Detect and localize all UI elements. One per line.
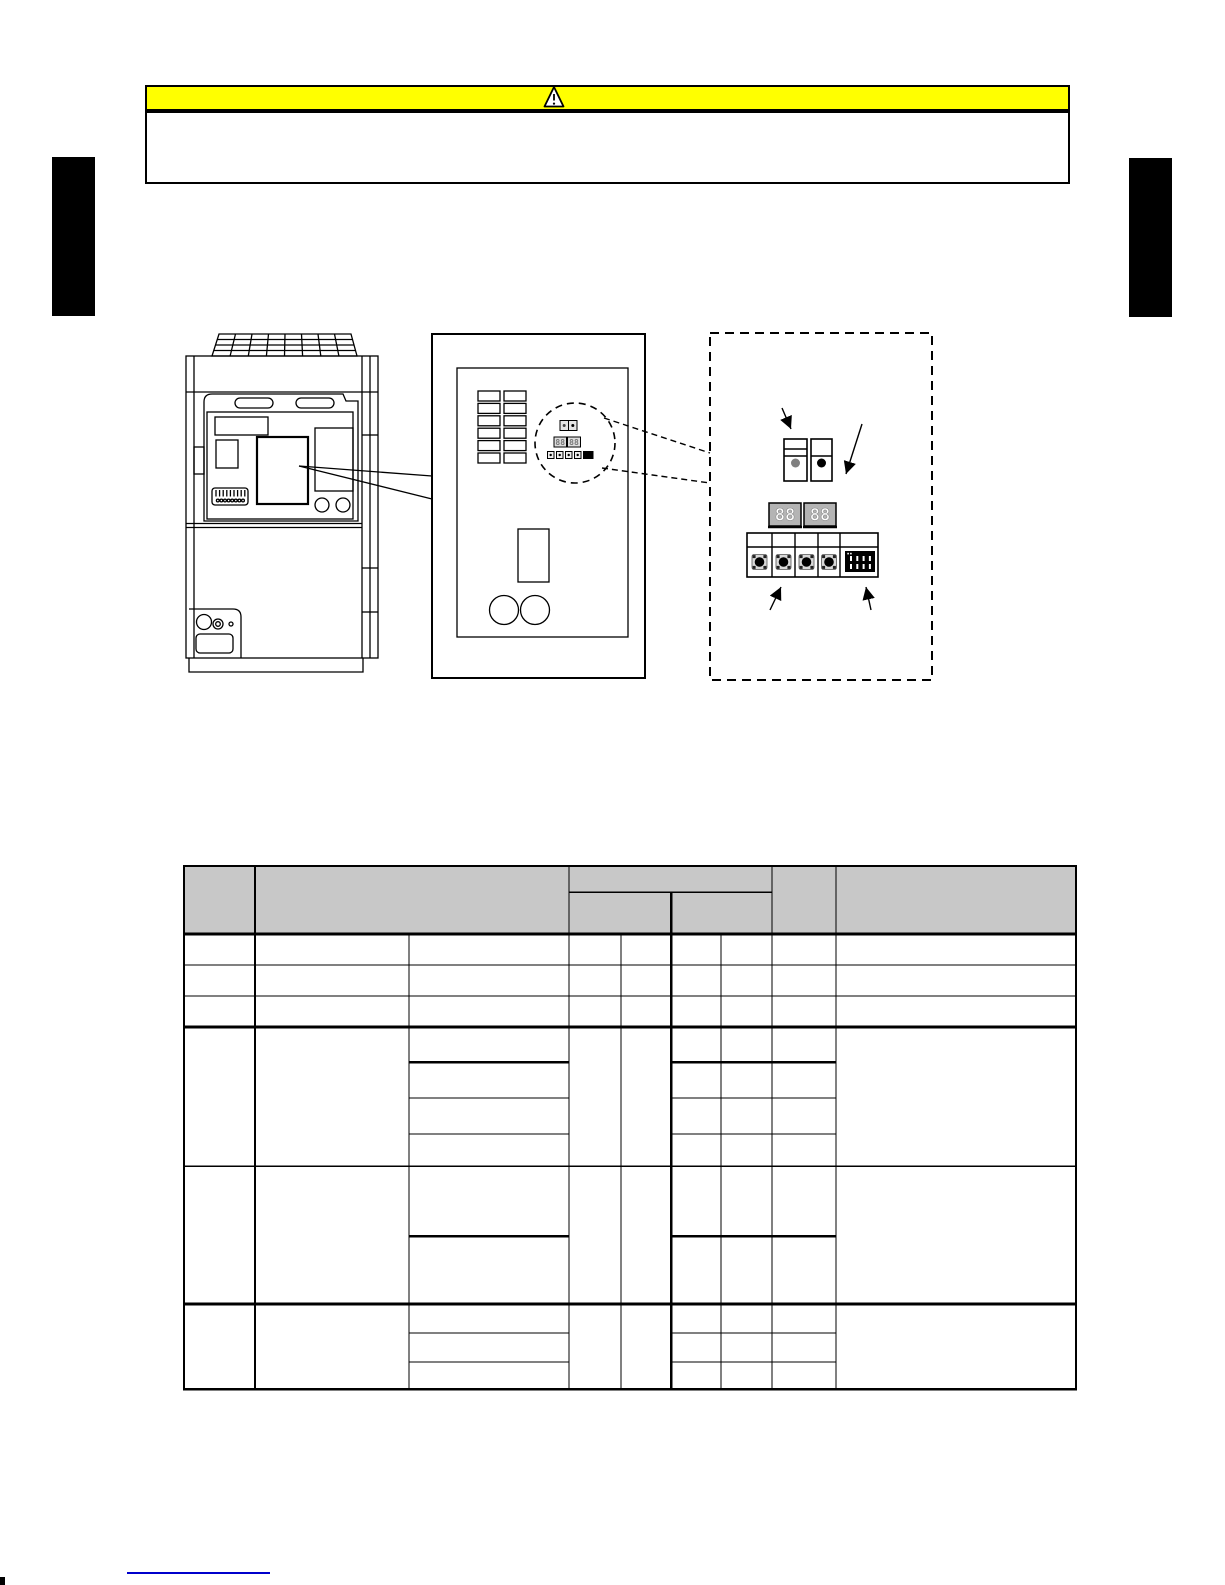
page-artwork: 88 88 xyxy=(0,0,1225,1585)
control-board-diagram: 88 88 xyxy=(432,334,710,678)
control-plate xyxy=(212,417,353,512)
led-gray xyxy=(791,459,800,468)
display-value: 88 xyxy=(810,506,830,526)
display-value: 88 xyxy=(775,506,795,526)
pcb-callout-lines xyxy=(299,466,432,499)
mini-controls: 88 88 xyxy=(548,421,594,459)
board-enclosure xyxy=(432,334,645,678)
valve-cluster xyxy=(189,609,241,658)
settings-table xyxy=(183,865,1077,1390)
led-block-right xyxy=(811,439,832,481)
led-black xyxy=(817,459,826,468)
board-capacitor xyxy=(490,596,519,625)
push-button xyxy=(824,557,834,567)
mini-display-value: 88 xyxy=(555,438,565,447)
push-button xyxy=(802,557,812,567)
terminal-strip xyxy=(212,488,248,505)
pointer-arrow-display xyxy=(846,424,862,474)
knockout-hole xyxy=(336,498,350,512)
pointer-arrow-led xyxy=(782,408,791,429)
table-header-band xyxy=(183,865,1077,934)
control-detail-diagram: 88 88 xyxy=(710,333,932,680)
outdoor-unit-diagram xyxy=(186,334,432,672)
connector-blocks xyxy=(478,391,526,463)
mini-dip-switch xyxy=(584,452,594,459)
manual-page: { "page": { "width": 1225, "height": 158… xyxy=(0,0,1225,1585)
unit-pcb xyxy=(257,437,308,504)
button-row xyxy=(747,533,878,577)
dip-switch xyxy=(845,551,875,572)
pointer-arrow-dip xyxy=(866,587,871,610)
detail-callout-lines xyxy=(602,418,710,483)
fan-grille xyxy=(212,334,357,356)
knockout-hole xyxy=(315,498,329,512)
push-buttons xyxy=(752,555,837,570)
seven-segment-displays: 88 88 xyxy=(768,503,837,527)
board-component xyxy=(518,529,549,582)
board-capacitor xyxy=(521,596,550,625)
warning-triangle-icon xyxy=(545,87,564,107)
board-outline xyxy=(457,368,628,637)
push-button xyxy=(779,557,789,567)
led-block-left xyxy=(784,439,807,481)
unit-cabinet xyxy=(186,356,378,672)
push-button xyxy=(755,557,765,567)
pointer-arrow-button xyxy=(770,587,781,610)
mini-display-value: 88 xyxy=(569,438,579,447)
